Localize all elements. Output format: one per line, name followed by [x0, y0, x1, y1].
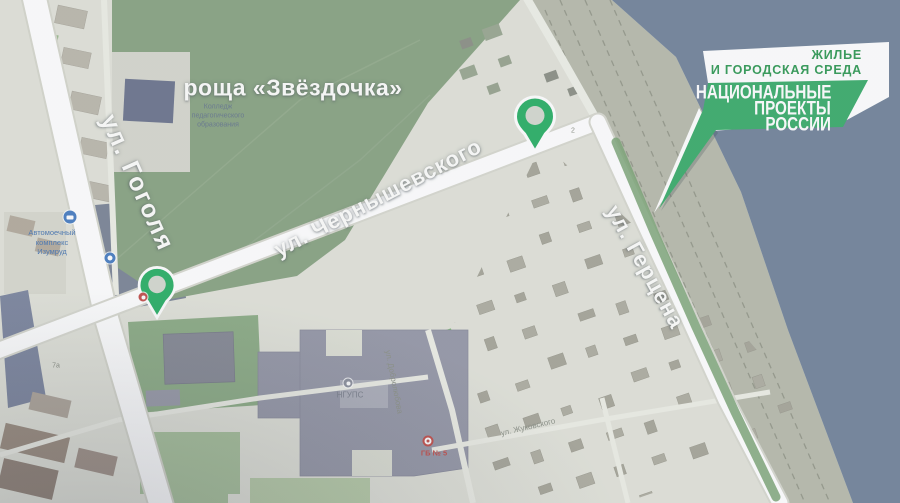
house-block — [539, 232, 552, 245]
house-block — [552, 281, 568, 297]
house-block — [531, 195, 549, 208]
house-block — [652, 453, 667, 465]
service-icon[interactable] — [105, 253, 116, 264]
house-block — [715, 473, 727, 484]
house-block — [631, 367, 649, 382]
park-label: роща «Звёздочка» — [183, 75, 402, 102]
house-block — [616, 301, 629, 316]
house-number: 7а — [52, 363, 60, 370]
carwash-icon[interactable] — [64, 211, 77, 224]
house-block — [538, 483, 553, 495]
hospital-label: ГБ № 5 — [421, 449, 447, 458]
izumrud-label: Автомоечный комплекс Изумруд — [28, 228, 75, 257]
house-block — [585, 345, 598, 358]
house-block — [507, 256, 526, 273]
house-block — [669, 360, 681, 371]
house-block — [585, 254, 603, 269]
house-block — [568, 439, 584, 453]
house-block — [386, 252, 402, 266]
house-block — [515, 380, 530, 392]
house-block — [423, 241, 441, 254]
house-block — [548, 353, 567, 370]
house-block — [644, 420, 657, 435]
university-icon[interactable] — [344, 379, 353, 388]
house-block — [431, 277, 444, 290]
house-block — [524, 162, 540, 178]
house-block — [477, 391, 490, 404]
house-block — [689, 442, 708, 459]
logo-program-line2: И ГОРОДСКАЯ СРЕДА — [711, 63, 862, 77]
house-block — [456, 217, 469, 232]
house-block — [494, 206, 510, 220]
house-block — [439, 311, 455, 327]
logo-program-line1: ЖИЛЬЕ — [812, 48, 862, 62]
house-block — [578, 309, 596, 322]
house-block — [561, 405, 573, 416]
house-block — [623, 334, 638, 346]
house-block — [576, 472, 595, 489]
house-block — [639, 491, 655, 503]
house-block — [393, 285, 412, 302]
house-block — [562, 151, 580, 166]
store-icon[interactable] — [139, 293, 148, 302]
university-label: НГУПС — [337, 391, 364, 400]
house-block — [677, 481, 695, 496]
house-block — [493, 457, 511, 470]
house-block — [486, 173, 498, 184]
logo-brand-line3: РОССИИ — [765, 117, 831, 134]
house-block — [530, 449, 543, 464]
house-block — [469, 267, 484, 279]
house-block — [522, 326, 538, 340]
house-number: 2 — [571, 128, 575, 135]
hospital-icon[interactable] — [423, 436, 434, 447]
house-block — [569, 188, 582, 203]
map-screenshot: роща «Звёздочка» ул. Гоголя ул. Чернышев… — [0, 0, 900, 503]
house-block — [484, 336, 497, 351]
college-label: Колледж педагогического образования — [192, 103, 245, 130]
house-block — [577, 221, 592, 233]
house-block — [477, 300, 495, 315]
house-block — [514, 292, 526, 303]
